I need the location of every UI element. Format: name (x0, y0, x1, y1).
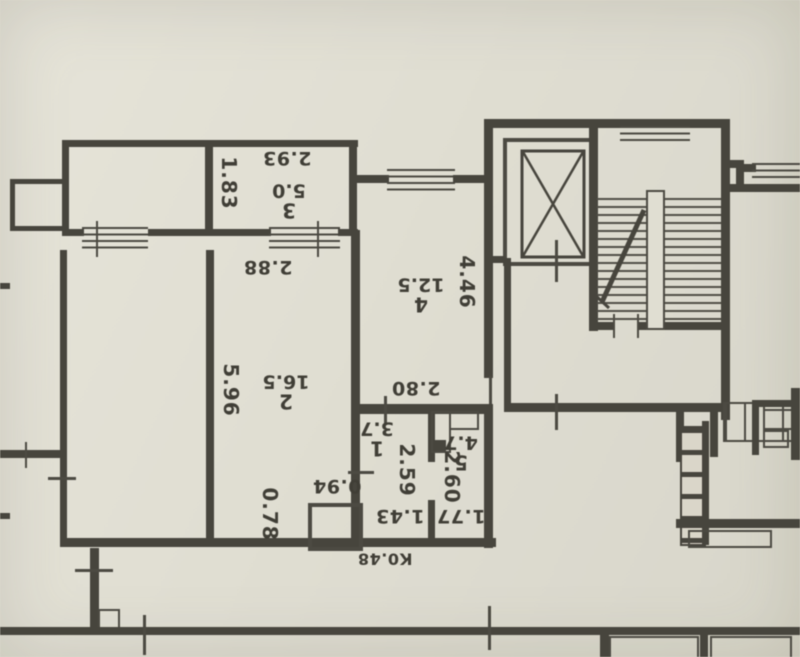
wall (10, 179, 64, 184)
dimension-label: 0.94 (313, 475, 362, 497)
wall (428, 500, 435, 546)
dimension-label: 4.46 (455, 255, 479, 308)
wall (0, 283, 10, 289)
dimension-tick (25, 442, 27, 468)
wall (504, 403, 730, 412)
room-label-3: 3 5.0 (272, 180, 306, 221)
room-label-2: 2 16.5 (263, 371, 310, 412)
wall (0, 513, 10, 519)
room-area: 5.0 (272, 180, 306, 200)
duct-label: К0.48 (357, 550, 412, 569)
dimension-tick (75, 569, 113, 572)
door-mark (488, 606, 491, 650)
dimension-label: 2.88 (244, 256, 293, 278)
dimension-label: 1.77 (437, 505, 486, 527)
wall (0, 450, 62, 458)
stair-arrow-icon (596, 196, 652, 310)
dimension-tick (317, 221, 319, 257)
wall (206, 250, 214, 546)
wall (484, 410, 493, 548)
window-hatch (620, 126, 690, 141)
window-frame (710, 636, 792, 657)
window-frame (609, 636, 699, 657)
wall (148, 229, 211, 236)
fixture (763, 409, 793, 430)
room-area: 12.5 (398, 274, 445, 294)
elevator-x-icon (520, 149, 586, 259)
room-area: 3.7 (360, 418, 394, 438)
wall (504, 258, 511, 410)
dimension-label: 2.60 (440, 450, 464, 503)
wall (729, 184, 800, 192)
room-label-1: 1 3.7 (360, 418, 394, 459)
dimension-label: 2.80 (392, 377, 441, 399)
wall (721, 128, 730, 420)
wall (484, 125, 493, 378)
dimension-label: 2.59 (395, 443, 419, 496)
wall (211, 229, 271, 236)
dimension-label: 1.83 (217, 156, 241, 209)
wall (453, 175, 487, 183)
wall (351, 230, 360, 546)
wall (700, 633, 708, 657)
dimension-label: 0.78 (258, 487, 282, 540)
room-number: 1 (360, 437, 394, 458)
wall (791, 388, 800, 460)
vent-box (449, 411, 479, 430)
fixture (763, 430, 789, 448)
duct-closet (308, 503, 363, 551)
floor-plan: 2.93 1.83 3 5.0 2.88 5.96 2 16.5 4 12.5 … (0, 0, 800, 657)
dimension-label: 2.93 (263, 147, 312, 169)
wall (357, 175, 389, 183)
dimension-label: 5.96 (219, 363, 243, 416)
room-label-4: 4 12.5 (398, 274, 445, 315)
room-area: 4.7 (444, 432, 478, 452)
dimension-tick (48, 477, 76, 480)
wall (676, 519, 800, 528)
dimension-tick (348, 471, 374, 474)
wall (205, 140, 213, 236)
room-number: 4 (398, 293, 445, 314)
dimension-tick (96, 221, 98, 257)
wall (710, 410, 718, 457)
wall (752, 400, 759, 455)
window-hatch (387, 169, 455, 191)
dimension-label: 1.43 (376, 505, 425, 527)
wall (62, 140, 69, 236)
wall (60, 250, 67, 546)
window-hatch (82, 227, 148, 249)
room-number: 3 (272, 199, 306, 220)
wall (10, 179, 15, 231)
window-hatch (752, 163, 800, 181)
window-hatch (269, 227, 340, 249)
elevator-door-mark (555, 240, 558, 282)
wall (62, 229, 84, 236)
wall (10, 226, 64, 231)
wall (484, 119, 730, 128)
wall (600, 633, 609, 657)
window-frame (688, 530, 772, 548)
room-number: 2 (263, 390, 310, 411)
stair-flight-right (664, 198, 721, 324)
wall (0, 627, 800, 635)
door-mark (555, 394, 558, 430)
dimension-tick (143, 615, 146, 655)
room-area: 16.5 (263, 371, 310, 391)
wall (349, 140, 357, 236)
